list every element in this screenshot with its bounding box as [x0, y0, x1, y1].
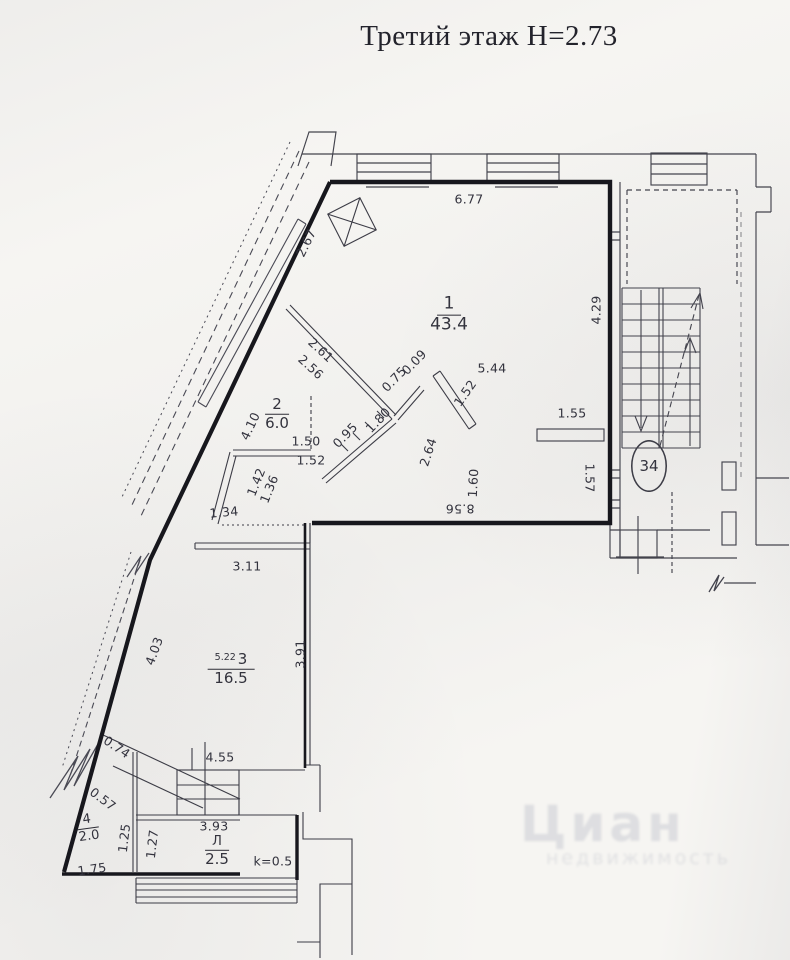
radiator-1	[722, 462, 736, 490]
window-top-2	[487, 154, 559, 181]
dim-niche: 1.34	[209, 503, 239, 520]
room-2-area: 6.0	[265, 415, 289, 432]
room-1-area: 43.4	[430, 316, 468, 335]
column-cross-outline	[297, 812, 352, 958]
staircase	[622, 288, 703, 448]
wall-room1-outline	[312, 182, 610, 523]
room-3-side-dim: 5.22	[215, 652, 236, 663]
room-1-label: 1 43.4	[430, 296, 468, 335]
corridor-walls	[610, 530, 737, 558]
stair-steps	[622, 288, 700, 448]
floorplan-page: Третий этаж Н=2.73	[0, 0, 790, 960]
entry-door-swing	[328, 198, 376, 246]
dim-shelf: 1.55	[557, 406, 586, 421]
stairs-diagonal-arrowhead	[691, 293, 703, 309]
stairs-down-arrow	[635, 290, 647, 431]
shelf-stub	[537, 429, 604, 441]
room4-loggia-partition	[133, 752, 137, 872]
dim-partc-bottom: 1.52	[296, 453, 325, 468]
floorplan-drawing	[0, 0, 790, 960]
room3-step	[305, 765, 320, 812]
dim-partc-top: 1.50	[291, 434, 320, 449]
loggia-coefficient: k=0.5	[253, 854, 292, 869]
apartment-number-badge: 34	[631, 440, 667, 492]
stairs-up-arrow	[684, 338, 696, 446]
room-4-area: 2.0	[77, 827, 101, 845]
dim-room1-right: 4.29	[589, 295, 604, 324]
dim-right-wall-lower: 1.57	[583, 463, 598, 492]
room-4-label: 4 2.0	[75, 811, 101, 844]
loggia-label: Л 2.5	[205, 835, 229, 867]
stairs-diagonal-dashed-arrow	[660, 295, 699, 446]
room-3-area: 16.5	[208, 670, 255, 687]
thick-walls	[62, 182, 610, 880]
radiator-2	[722, 512, 736, 545]
dim-step: 3.11	[232, 559, 261, 574]
dim-loggia-width: 3.93	[199, 819, 228, 834]
room4-inner-edge	[113, 766, 203, 808]
dim-room1-bottom: 8.56	[445, 502, 474, 517]
break-mark-right	[709, 575, 724, 592]
balcony-edge-lines	[50, 142, 309, 798]
dim-room3-right: 3.91	[293, 639, 308, 668]
building-outline-top-right	[302, 154, 771, 545]
dim-room1-width: 5.44	[477, 361, 506, 376]
exterior-thin-walls	[298, 132, 789, 558]
window-stairwell	[651, 153, 707, 185]
partition-stub	[394, 386, 424, 420]
dim-room3-bottom: 4.55	[205, 750, 234, 765]
room-3-label: 5.223 16.5	[208, 652, 255, 687]
dim-room1-inner-vert: 1.60	[465, 468, 481, 498]
wall-diagonal	[64, 182, 330, 872]
dim-top-wall: 6.77	[454, 192, 483, 207]
niche-step-wall	[195, 523, 310, 549]
right-edge-ticks	[756, 478, 789, 545]
chimney-shape	[298, 132, 336, 166]
room-2-number: 2	[265, 397, 289, 415]
loggia-area: 2.5	[205, 850, 229, 867]
room-2-label: 2 6.0	[265, 397, 289, 432]
window-top-1	[357, 154, 431, 181]
room-3-number: 5.223	[208, 652, 255, 670]
loggia-railing	[136, 878, 297, 903]
loggia-letter: Л	[205, 835, 229, 851]
room-1-number: 1	[437, 296, 462, 316]
stairwell-dashed-outline	[627, 190, 737, 284]
